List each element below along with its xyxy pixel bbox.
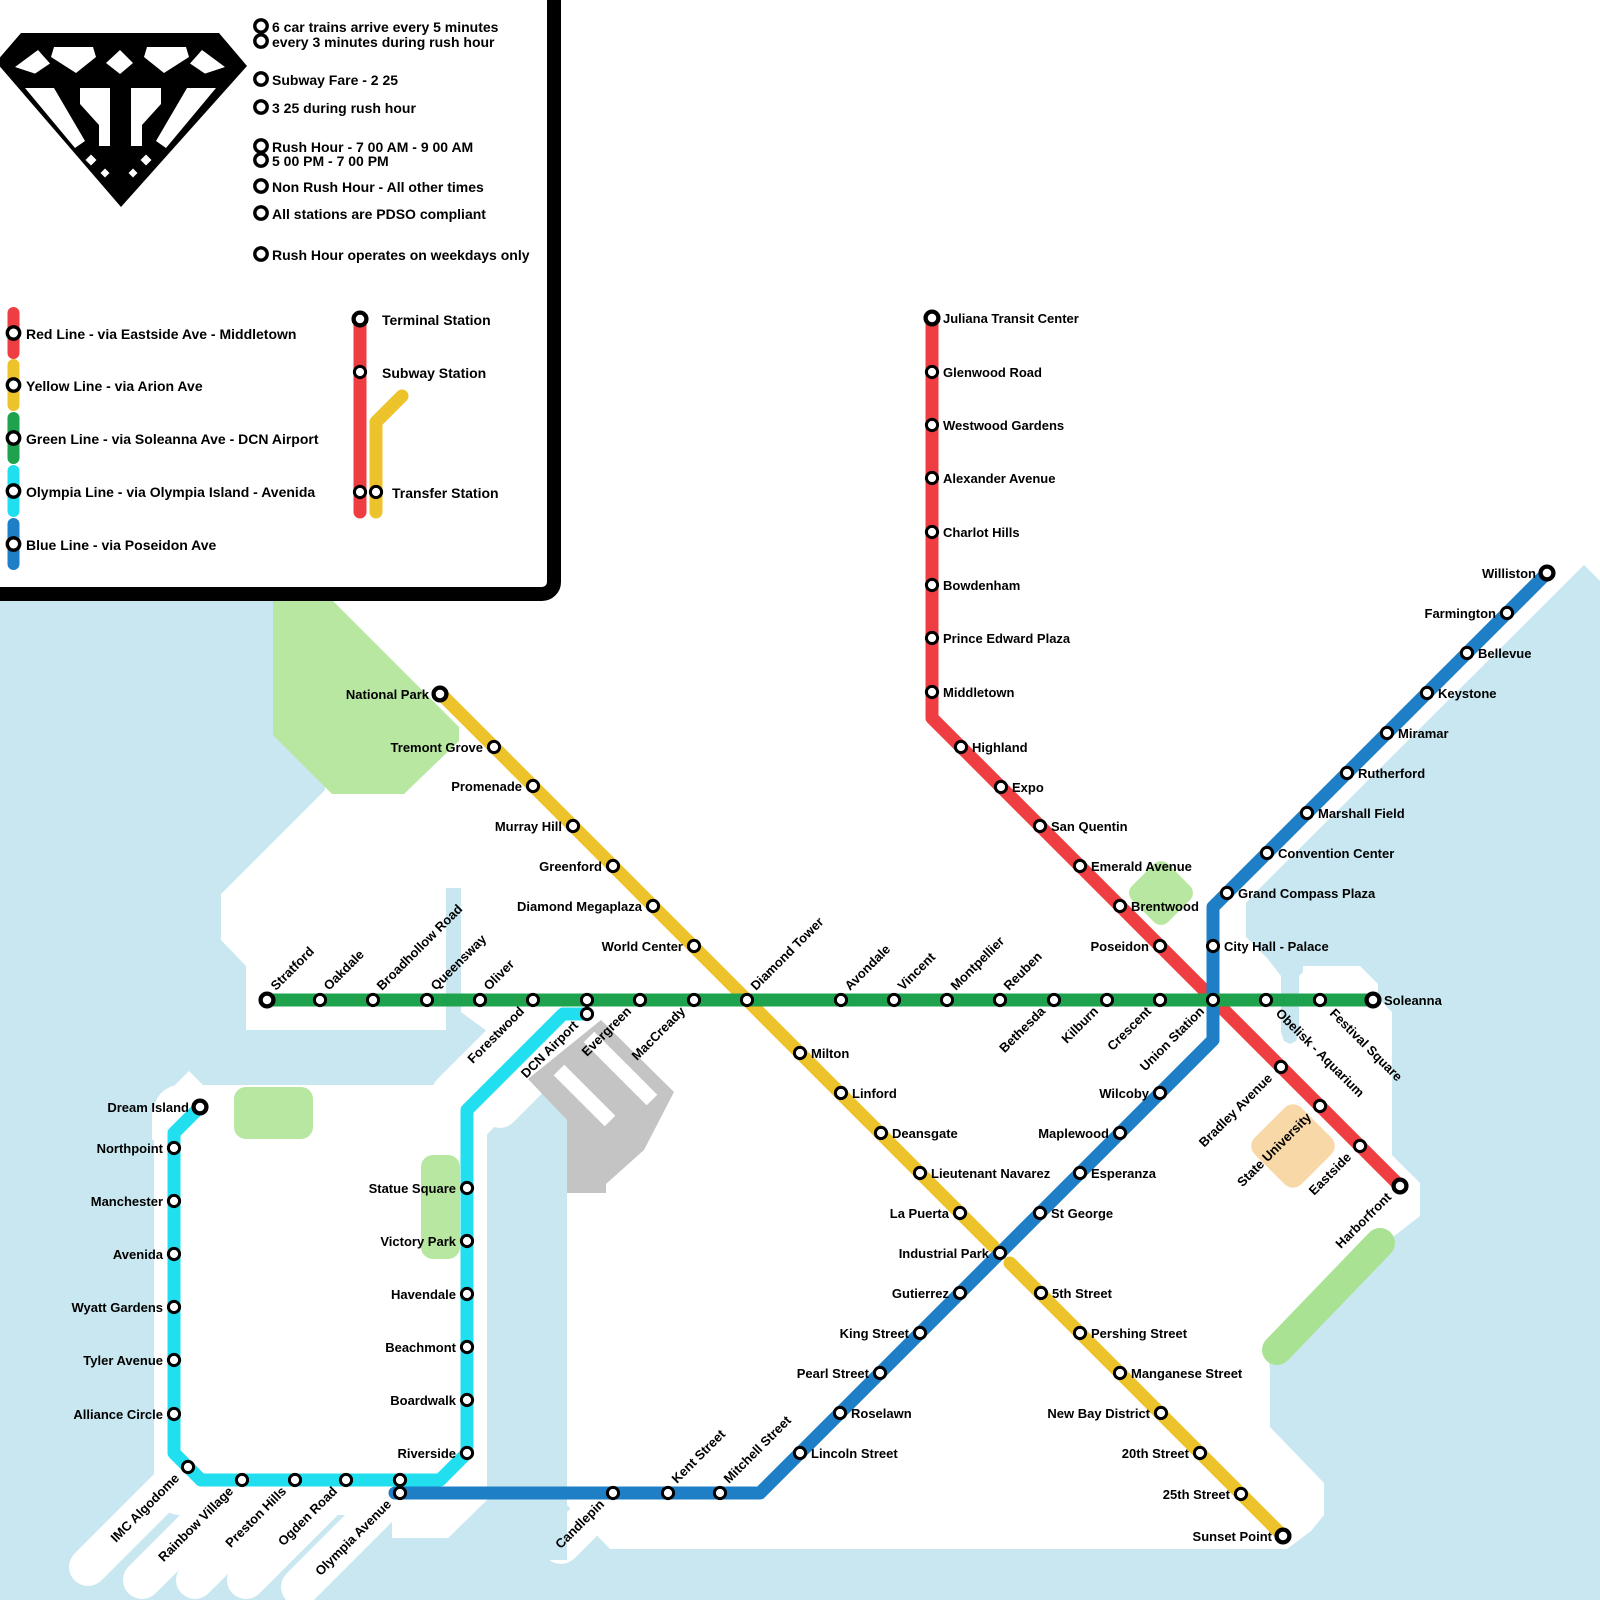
svg-text:Soleanna: Soleanna — [1384, 993, 1443, 1008]
svg-text:Rush Hour operates on weekdays: Rush Hour operates on weekdays only — [272, 247, 530, 263]
svg-text:Rutherford: Rutherford — [1358, 766, 1425, 781]
svg-text:Subway Station: Subway Station — [382, 365, 486, 381]
svg-text:Miramar: Miramar — [1398, 726, 1449, 741]
svg-text:Convention Center: Convention Center — [1278, 846, 1394, 861]
svg-text:Gutierrez: Gutierrez — [892, 1286, 950, 1301]
svg-text:Tyler Avenue: Tyler Avenue — [83, 1353, 163, 1368]
svg-text:Riverside: Riverside — [397, 1446, 456, 1461]
svg-text:Sunset Point: Sunset Point — [1193, 1529, 1273, 1544]
svg-text:Alliance Circle: Alliance Circle — [73, 1407, 163, 1422]
svg-text:Deansgate: Deansgate — [892, 1126, 958, 1141]
svg-text:Industrial Park: Industrial Park — [899, 1246, 990, 1261]
svg-text:5 00 PM - 7 00 PM: 5 00 PM - 7 00 PM — [272, 153, 389, 169]
svg-text:Wyatt Gardens: Wyatt Gardens — [71, 1300, 163, 1315]
svg-text:Victory Park: Victory Park — [380, 1234, 456, 1249]
svg-text:Manganese Street: Manganese Street — [1131, 1366, 1243, 1381]
svg-text:Northpoint: Northpoint — [97, 1141, 164, 1156]
svg-text:Boardwalk: Boardwalk — [390, 1393, 457, 1408]
svg-text:Subway Fare - 2 25: Subway Fare - 2 25 — [272, 72, 398, 88]
svg-text:Brentwood: Brentwood — [1131, 899, 1199, 914]
svg-text:Prince Edward Plaza: Prince Edward Plaza — [943, 631, 1071, 646]
svg-text:Expo: Expo — [1012, 780, 1044, 795]
svg-text:Glenwood Road: Glenwood Road — [943, 365, 1042, 380]
svg-text:Milton: Milton — [811, 1046, 849, 1061]
svg-text:Avenida: Avenida — [113, 1247, 164, 1262]
svg-text:Roselawn: Roselawn — [851, 1406, 912, 1421]
svg-text:Blue Line - via Poseidon Ave: Blue Line - via Poseidon Ave — [26, 537, 217, 553]
svg-text:Keystone: Keystone — [1438, 686, 1497, 701]
svg-text:National Park: National Park — [346, 687, 430, 702]
svg-text:Westwood Gardens: Westwood Gardens — [943, 418, 1064, 433]
svg-text:Promenade: Promenade — [451, 779, 522, 794]
svg-text:St George: St George — [1051, 1206, 1113, 1221]
svg-text:City Hall - Palace: City Hall - Palace — [1224, 939, 1329, 954]
svg-text:Marshall Field: Marshall Field — [1318, 806, 1405, 821]
svg-text:Non Rush Hour - All other time: Non Rush Hour - All other times — [272, 179, 484, 195]
svg-text:Grand Compass Plaza: Grand Compass Plaza — [1238, 886, 1376, 901]
svg-text:Juliana Transit Center: Juliana Transit Center — [943, 311, 1079, 326]
svg-text:Red Line - via Eastside Ave -: Red Line - via Eastside Ave - Middletown — [26, 326, 296, 342]
svg-text:Linford: Linford — [852, 1086, 897, 1101]
svg-text:every 3 minutes during rush ho: every 3 minutes during rush hour — [272, 34, 495, 50]
svg-text:Yellow Line - via Arion Ave: Yellow Line - via Arion Ave — [26, 378, 203, 394]
svg-text:Olympia Line - via Olympia Isl: Olympia Line - via Olympia Island - Aven… — [26, 484, 315, 500]
svg-text:5th Street: 5th Street — [1052, 1286, 1113, 1301]
svg-text:Manchester: Manchester — [91, 1194, 163, 1209]
svg-text:Lincoln Street: Lincoln Street — [811, 1446, 898, 1461]
svg-text:Maplewood: Maplewood — [1038, 1126, 1109, 1141]
svg-text:Esperanza: Esperanza — [1091, 1166, 1157, 1181]
svg-text:Middletown: Middletown — [943, 685, 1015, 700]
svg-text:Tremont Grove: Tremont Grove — [391, 740, 483, 755]
svg-text:King Street: King Street — [840, 1326, 910, 1341]
svg-text:World Center: World Center — [602, 939, 683, 954]
svg-text:20th Street: 20th Street — [1122, 1446, 1190, 1461]
svg-text:Greenford: Greenford — [539, 859, 602, 874]
svg-text:All stations are PDSO complian: All stations are PDSO compliant — [272, 206, 486, 222]
svg-text:Highland: Highland — [972, 740, 1028, 755]
svg-text:Pershing Street: Pershing Street — [1091, 1326, 1188, 1341]
svg-text:Diamond Megaplaza: Diamond Megaplaza — [517, 899, 643, 914]
svg-text:Terminal Station: Terminal Station — [382, 312, 491, 328]
svg-text:Beachmont: Beachmont — [385, 1340, 456, 1355]
svg-text:New Bay District: New Bay District — [1047, 1406, 1150, 1421]
svg-text:La Puerta: La Puerta — [890, 1206, 950, 1221]
svg-text:6 car trains arrive every 5 mi: 6 car trains arrive every 5 minutes — [272, 19, 499, 35]
svg-text:Williston: Williston — [1482, 566, 1536, 581]
svg-text:Havendale: Havendale — [391, 1287, 456, 1302]
svg-text:Charlot Hills: Charlot Hills — [943, 525, 1020, 540]
svg-text:Dream Island: Dream Island — [107, 1100, 189, 1115]
svg-text:Poseidon: Poseidon — [1090, 939, 1149, 954]
svg-text:Bellevue: Bellevue — [1478, 646, 1531, 661]
svg-text:Pearl Street: Pearl Street — [797, 1366, 870, 1381]
svg-text:Green Line - via Soleanna Ave: Green Line - via Soleanna Ave - DCN Airp… — [26, 431, 319, 447]
svg-text:Transfer Station: Transfer Station — [392, 485, 499, 501]
svg-text:Statue Square: Statue Square — [369, 1181, 456, 1196]
svg-text:25th Street: 25th Street — [1163, 1487, 1231, 1502]
svg-text:3 25 during rush hour: 3 25 during rush hour — [272, 100, 416, 116]
svg-text:Lieutenant Navarez: Lieutenant Navarez — [931, 1166, 1051, 1181]
svg-text:Alexander Avenue: Alexander Avenue — [943, 471, 1055, 486]
svg-text:Emerald Avenue: Emerald Avenue — [1091, 859, 1192, 874]
svg-text:Wilcoby: Wilcoby — [1099, 1086, 1149, 1101]
svg-text:Farmington: Farmington — [1425, 606, 1497, 621]
svg-text:Murray Hill: Murray Hill — [495, 819, 562, 834]
svg-text:Bowdenham: Bowdenham — [943, 578, 1020, 593]
svg-text:San Quentin: San Quentin — [1051, 819, 1128, 834]
